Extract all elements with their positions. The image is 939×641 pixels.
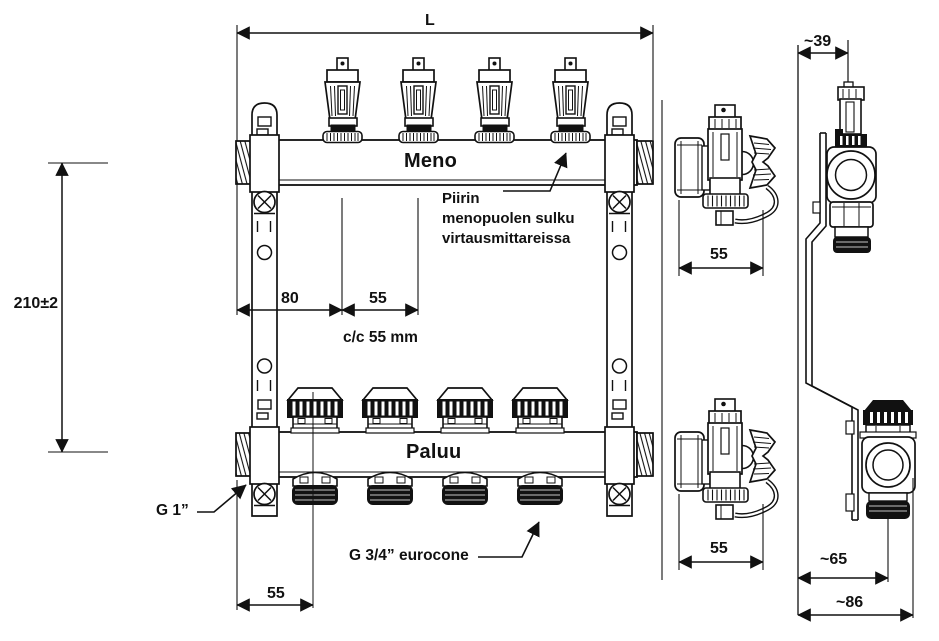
eurocone-connection-label: G 3/4” eurocone bbox=[349, 547, 469, 566]
mounting-rail-right bbox=[605, 103, 634, 516]
wall-profile-view bbox=[798, 40, 916, 618]
depth-39-dimension-label: ~39 bbox=[804, 32, 831, 51]
depth-65-dimension-label: ~65 bbox=[820, 550, 847, 569]
manifold-technical-drawing: L ~39 Meno Piirin menopuolen sulku virta… bbox=[0, 0, 939, 641]
height-dimension-label: 210±2 bbox=[4, 294, 58, 313]
dim-80-label: 80 bbox=[281, 289, 299, 308]
supply-profile-assembly bbox=[827, 40, 876, 253]
dim-55-end-label: 55 bbox=[267, 584, 285, 603]
shutoff-note-line-2: menopuolen sulku bbox=[442, 210, 575, 228]
shutoff-note-line-1: Piirin bbox=[442, 190, 480, 208]
side-dim-55-supply-label: 55 bbox=[710, 245, 728, 264]
return-profile-assembly bbox=[860, 400, 916, 519]
leader-eurocone bbox=[478, 522, 539, 557]
shutoff-note-line-3: virtausmittareissa bbox=[442, 230, 570, 248]
g1-connection-label: G 1” bbox=[156, 502, 189, 521]
return-manifold-label: Paluu bbox=[406, 440, 461, 464]
supply-manifold-label: Meno bbox=[404, 149, 457, 173]
depth-86-dimension-label: ~86 bbox=[836, 593, 863, 612]
leader-g1 bbox=[197, 485, 246, 512]
side-dim-55-return-label: 55 bbox=[710, 539, 728, 558]
length-dimension-label: L bbox=[425, 11, 435, 30]
dim-55-label: 55 bbox=[369, 289, 387, 308]
cc-spacing-label: c/c 55 mm bbox=[343, 329, 418, 348]
drawing-linework bbox=[0, 0, 939, 641]
front-view bbox=[48, 25, 662, 610]
